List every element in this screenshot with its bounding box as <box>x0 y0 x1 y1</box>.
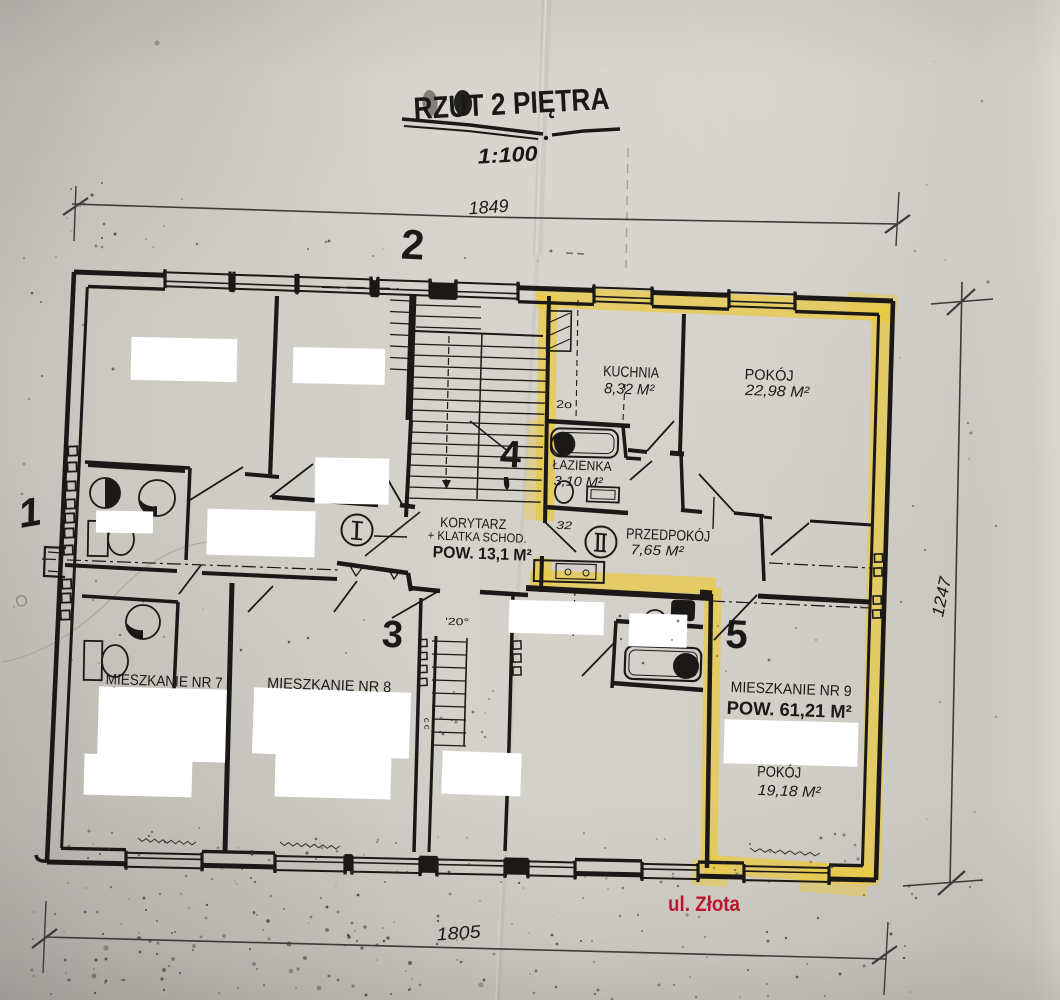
svg-text:1:100: 1:100 <box>477 142 538 168</box>
svg-text:22,98 M²: 22,98 M² <box>744 382 811 401</box>
svg-text:KUCHNIA: KUCHNIA <box>603 363 660 382</box>
svg-text:7,65 M²: 7,65 M² <box>630 541 685 559</box>
svg-text:32: 32 <box>556 520 572 533</box>
svg-text:'20°: '20° <box>445 617 469 629</box>
svg-text:2o: 2o <box>556 399 572 412</box>
svg-text:POKÓJ: POKÓJ <box>757 763 802 782</box>
svg-text:3: 3 <box>381 613 404 656</box>
svg-text:19,18 M²: 19,18 M² <box>757 782 822 801</box>
svg-text:5: 5 <box>724 612 749 657</box>
svg-text:1805: 1805 <box>436 921 482 944</box>
svg-text:ŁAZIENKA: ŁAZIENKA <box>552 457 611 474</box>
svg-text:4: 4 <box>499 433 522 476</box>
svg-text:POW. 61,21 M²: POW. 61,21 M² <box>726 697 852 722</box>
svg-text:1849: 1849 <box>468 196 509 219</box>
svg-text:3,10 M²: 3,10 M² <box>553 473 603 490</box>
svg-text:POW. 13,1 M²: POW. 13,1 M² <box>432 543 532 564</box>
svg-text:8,32 M²: 8,32 M² <box>604 380 656 399</box>
svg-text:ul. Złota: ul. Złota <box>668 893 740 916</box>
svg-text:.O: .O <box>10 592 30 612</box>
svg-text:2: 2 <box>400 220 426 268</box>
svg-text:c c: c c <box>422 718 432 730</box>
